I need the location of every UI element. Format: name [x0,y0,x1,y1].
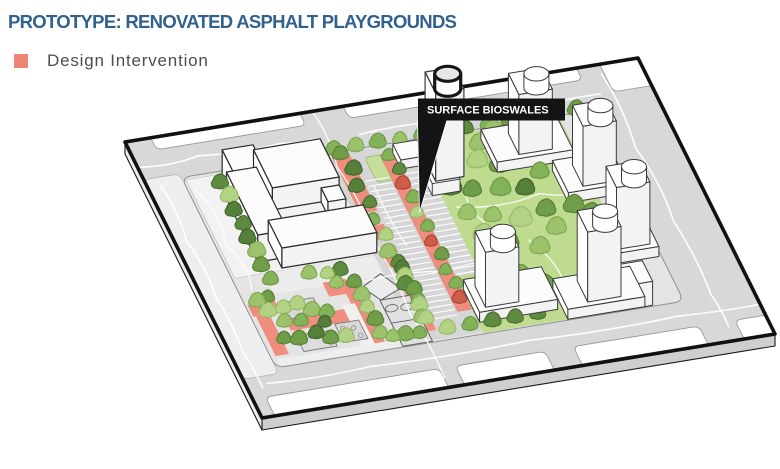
svg-text:SURFACE BIOSWALES: SURFACE BIOSWALES [427,105,549,117]
